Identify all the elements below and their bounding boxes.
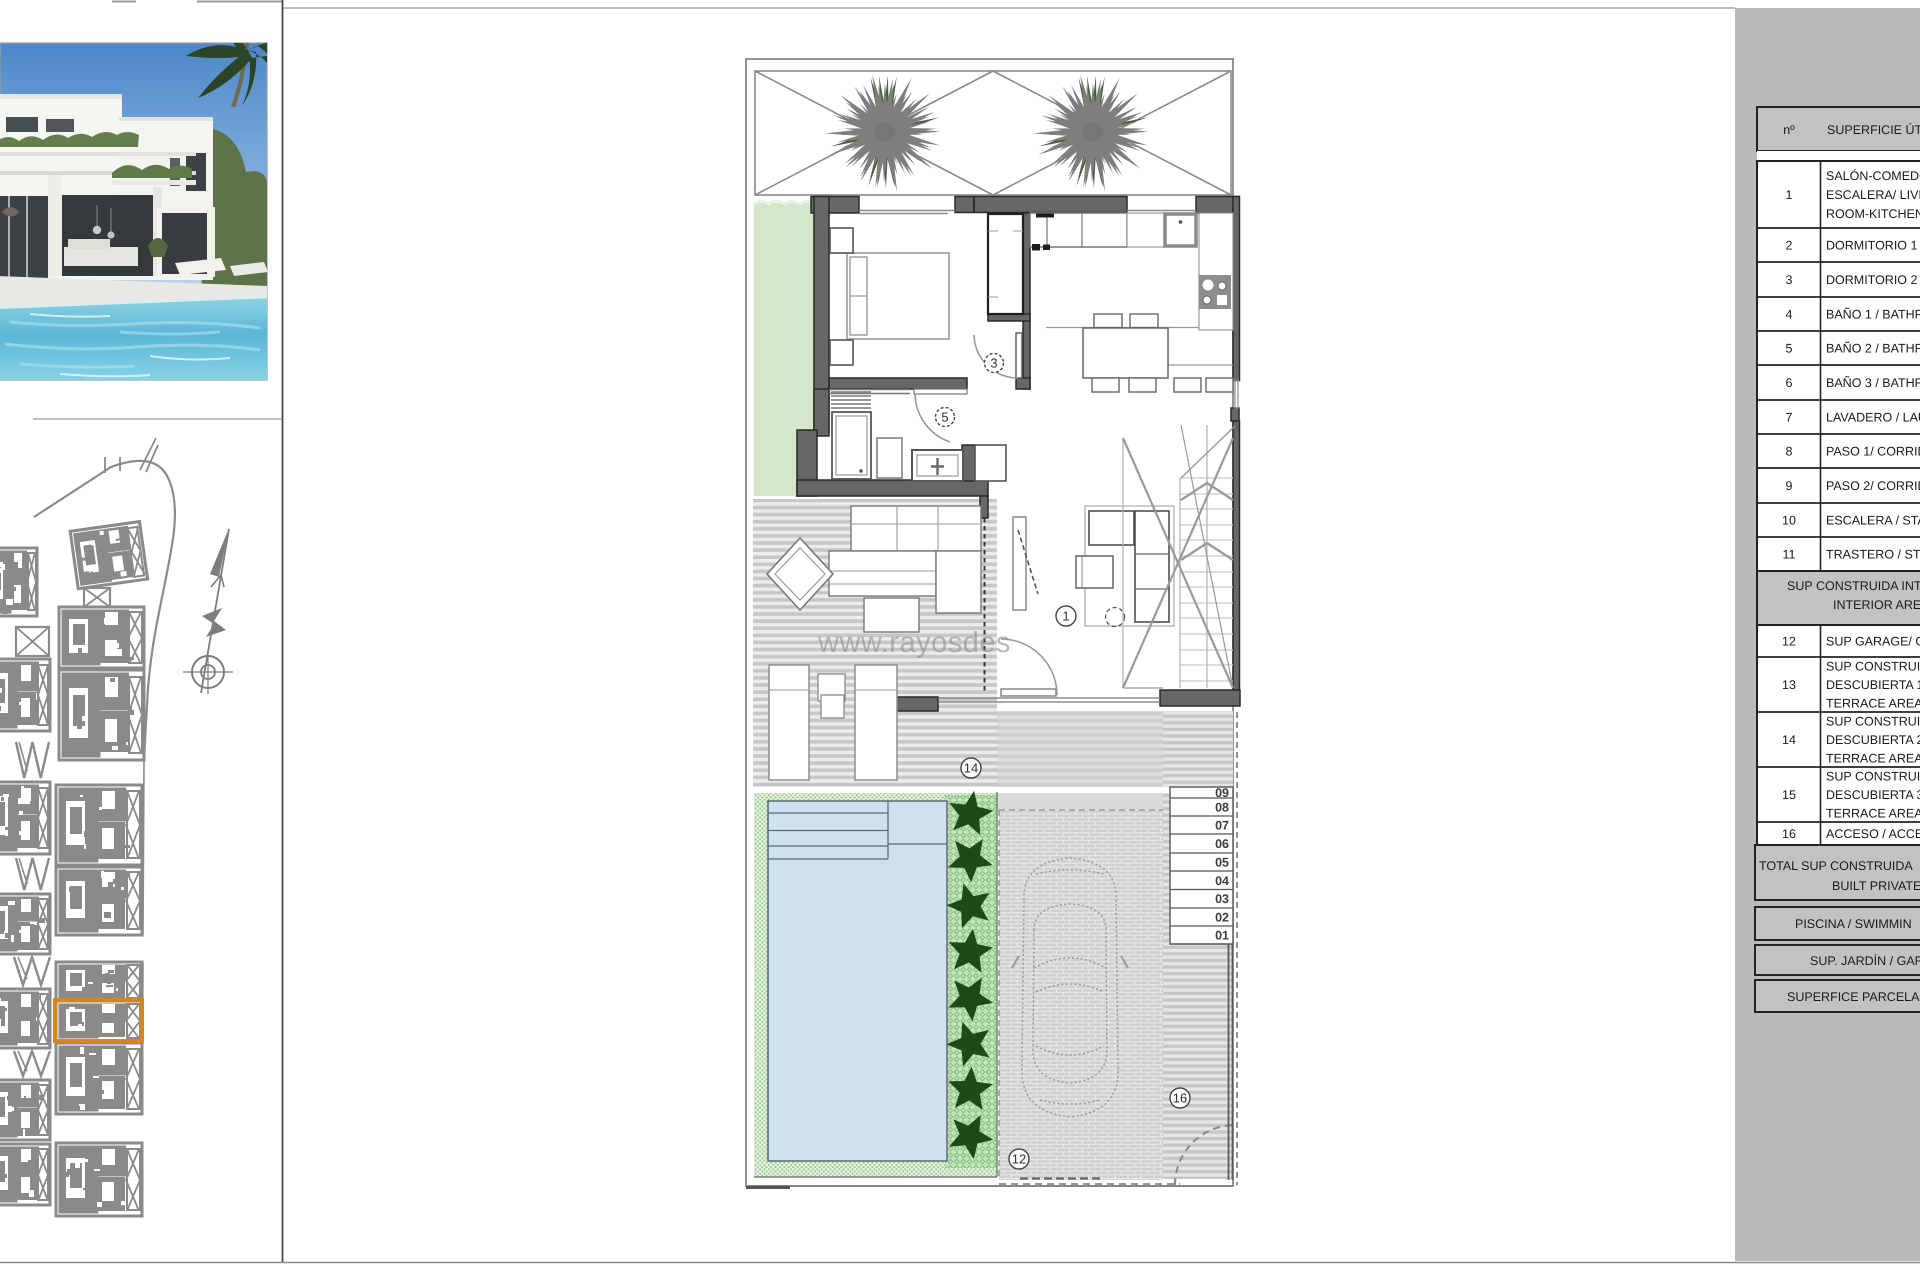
svg-text:12: 12 (1782, 635, 1796, 649)
svg-text:3: 3 (1786, 273, 1793, 287)
svg-text:7: 7 (1786, 411, 1793, 425)
svg-text:SUP CONSTRUIDA INTER: SUP CONSTRUIDA INTER (1787, 579, 1920, 593)
svg-text:LAVADERO / LAUND: LAVADERO / LAUND (1826, 411, 1920, 425)
svg-text:01: 01 (1215, 929, 1229, 943)
svg-text:PASO 2/ CORRIDOR: PASO 2/ CORRIDOR (1826, 479, 1920, 493)
svg-text:03: 03 (1215, 892, 1229, 906)
svg-text:3: 3 (990, 356, 997, 371)
svg-text:02: 02 (1215, 911, 1229, 925)
svg-text:SUP. JARDÍN / GARD: SUP. JARDÍN / GARD (1810, 954, 1920, 968)
svg-text:15: 15 (1782, 788, 1796, 802)
svg-text:DESCUBIERTA 1 /: DESCUBIERTA 1 / (1826, 678, 1920, 692)
svg-text:4: 4 (1786, 308, 1793, 322)
svg-text:www.rayosdes: www.rayosdes (817, 627, 1011, 659)
svg-text:INTERIOR AREA: INTERIOR AREA (1833, 598, 1920, 612)
svg-text:DESCUBIERTA 3 /: DESCUBIERTA 3 / (1826, 788, 1920, 802)
svg-text:5: 5 (1786, 342, 1793, 356)
svg-text:TOTAL SUP CONSTRUIDA: TOTAL SUP CONSTRUIDA (1759, 859, 1913, 873)
svg-text:14: 14 (1782, 733, 1796, 747)
svg-text:13: 13 (1782, 678, 1796, 692)
svg-text:8: 8 (1786, 445, 1793, 459)
svg-text:SUPERFICIE ÚTIL / USEF: SUPERFICIE ÚTIL / USEF (1827, 123, 1920, 137)
svg-text:PISCINA / SWIMMIN: PISCINA / SWIMMIN (1795, 917, 1912, 931)
svg-text:BUILT PRIVATE: BUILT PRIVATE (1832, 879, 1920, 893)
svg-text:ESCALERA / STAIRS: ESCALERA / STAIRS (1826, 514, 1920, 528)
svg-text:SUP CONSTRUIDA: SUP CONSTRUIDA (1826, 660, 1920, 674)
svg-text:ACCESO / ACCESS: ACCESO / ACCESS (1826, 827, 1920, 841)
svg-text:10: 10 (1782, 514, 1796, 528)
svg-text:6: 6 (1786, 376, 1793, 390)
svg-text:nº: nº (1783, 123, 1795, 137)
svg-text:1: 1 (1062, 609, 1069, 624)
svg-text:TERRACE AREA 3: TERRACE AREA 3 (1826, 807, 1920, 821)
svg-text:SUP GARAGE/ GARA: SUP GARAGE/ GARA (1826, 635, 1920, 649)
svg-text:2: 2 (1786, 239, 1793, 253)
svg-text:SALÓN-COMEDOR-: SALÓN-COMEDOR- (1826, 169, 1920, 183)
svg-text:ESCALERA/ LIVING-: ESCALERA/ LIVING- (1826, 188, 1920, 202)
svg-text:04: 04 (1215, 874, 1229, 888)
svg-text:06: 06 (1215, 837, 1229, 851)
svg-text:TRASTERO / STORA: TRASTERO / STORA (1826, 548, 1920, 562)
svg-text:05: 05 (1215, 856, 1229, 870)
svg-text:16: 16 (1782, 827, 1796, 841)
svg-text:BAÑO 3 / BATHROO: BAÑO 3 / BATHROO (1826, 376, 1920, 390)
svg-text:BAÑO 2 / BATHROO: BAÑO 2 / BATHROO (1826, 342, 1920, 356)
svg-text:PASO 1/ CORRIDOR: PASO 1/ CORRIDOR (1826, 445, 1920, 459)
svg-text:SUP CONSTRUIDA: SUP CONSTRUIDA (1826, 715, 1920, 729)
svg-text:TERRACE AREA 2: TERRACE AREA 2 (1826, 752, 1920, 766)
svg-text:09: 09 (1215, 786, 1229, 800)
svg-text:14: 14 (964, 761, 978, 776)
svg-text:BAÑO 1 / BATHROO: BAÑO 1 / BATHROO (1826, 308, 1920, 322)
svg-text:5: 5 (941, 410, 948, 425)
svg-text:TERRACE AREA 1: TERRACE AREA 1 (1826, 697, 1920, 711)
svg-text:DORMITORIO 2 / BED: DORMITORIO 2 / BED (1826, 273, 1920, 287)
svg-text:12: 12 (1012, 1152, 1026, 1167)
svg-text:16: 16 (1173, 1091, 1187, 1106)
svg-text:ROOM-KITCHEN-ST: ROOM-KITCHEN-ST (1826, 207, 1920, 221)
svg-text:SUP CONSTRUIDA: SUP CONSTRUIDA (1826, 770, 1920, 784)
svg-text:DORMITORIO 1 / BED: DORMITORIO 1 / BED (1826, 239, 1920, 253)
svg-text:11: 11 (1783, 548, 1796, 562)
svg-text:SUPERFICE PARCELA: SUPERFICE PARCELA (1787, 990, 1920, 1004)
svg-text:08: 08 (1215, 801, 1229, 815)
svg-text:DESCUBIERTA 2 /: DESCUBIERTA 2 / (1826, 733, 1920, 747)
svg-text:1: 1 (1786, 188, 1793, 202)
svg-text:9: 9 (1786, 479, 1793, 493)
svg-text:07: 07 (1215, 819, 1229, 833)
